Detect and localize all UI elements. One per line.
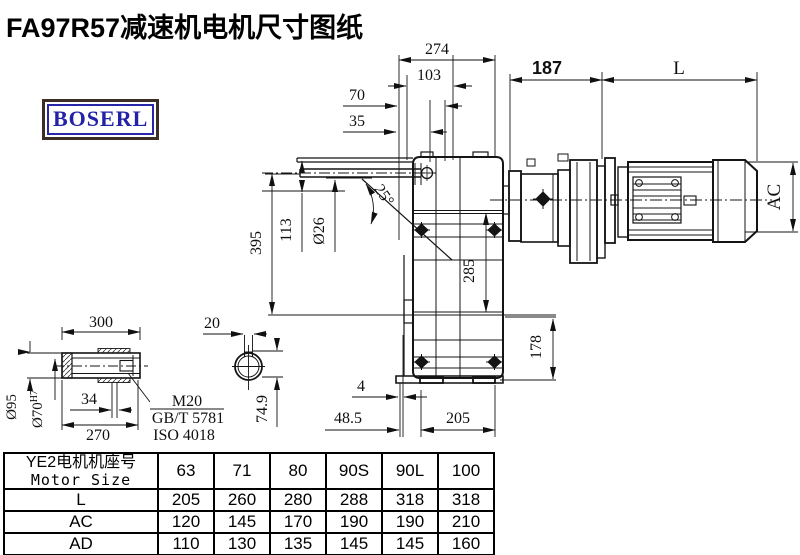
input-shaft xyxy=(262,158,436,185)
note-standard-iso: ISO 4018 xyxy=(153,427,215,444)
cell: 160 xyxy=(438,533,494,555)
cell: 190 xyxy=(382,511,438,533)
cell: 210 xyxy=(438,511,494,533)
dim-187: 187 xyxy=(532,58,562,78)
dim-34: 34 xyxy=(81,391,97,408)
note-standard-gb: GB/T 5781 xyxy=(152,410,224,427)
table-row-L: L 205 260 280 288 318 318 xyxy=(4,489,494,511)
cell: 190 xyxy=(326,511,382,533)
dim-35: 35 xyxy=(349,113,365,130)
dim-178: 178 xyxy=(528,335,545,359)
dim-angle: 25° xyxy=(370,181,397,209)
table-corner-line1: YE2电机机座号 xyxy=(5,454,157,472)
column-header: 71 xyxy=(214,453,270,489)
cell: 145 xyxy=(326,533,382,555)
shaft-section-view xyxy=(232,345,265,390)
cell: 288 xyxy=(326,489,382,511)
cell: 280 xyxy=(270,489,326,511)
dim-300: 300 xyxy=(89,314,113,331)
dim-L: L xyxy=(673,58,685,79)
dim-AC: AC xyxy=(764,184,785,210)
dim-20: 20 xyxy=(204,315,220,332)
motor-size-table: YE2电机机座号 Motor Size 63 71 80 90S 90L 100… xyxy=(3,452,495,555)
cell: 110 xyxy=(158,533,214,555)
dim-o95: Ø95 xyxy=(4,394,20,420)
cell: 205 xyxy=(158,489,214,511)
column-header: 100 xyxy=(438,453,494,489)
note-thread: M20 xyxy=(172,393,202,410)
dim-285: 285 xyxy=(461,259,478,283)
dim-395: 395 xyxy=(248,231,265,255)
table-corner-cell: YE2电机机座号 Motor Size xyxy=(4,453,158,489)
page: 274 103 70 35 187 L AC 395 113 Ø26 25° 2… xyxy=(0,0,800,555)
technical-drawing: 274 103 70 35 187 L AC 395 113 Ø26 25° 2… xyxy=(0,0,800,452)
column-header: 63 xyxy=(158,453,214,489)
column-header: 90S xyxy=(326,453,382,489)
dim-74-9: 74.9 xyxy=(254,395,271,423)
dim-103: 103 xyxy=(417,67,441,84)
bolt-symbols xyxy=(413,222,503,370)
oil-plug-symbol xyxy=(533,189,553,209)
brand-logo: BOSERL xyxy=(42,99,159,140)
brand-logo-text: BOSERL xyxy=(53,106,148,131)
table-row-AC: AC 120 145 170 190 190 210 xyxy=(4,511,494,533)
dim-o70: Ø70 xyxy=(30,402,46,428)
dim-o70-tolerance: H7 xyxy=(29,390,40,402)
dim-shaft-dia: Ø26 xyxy=(311,217,328,245)
cell: 318 xyxy=(438,489,494,511)
row-label: AD xyxy=(4,533,158,555)
cell: 135 xyxy=(270,533,326,555)
cell: 120 xyxy=(158,511,214,533)
brand-logo-frame: BOSERL xyxy=(47,104,154,135)
dim-274: 274 xyxy=(425,41,449,58)
page-title: FA97R57减速机电机尺寸图纸 xyxy=(6,6,363,45)
column-header: 90L xyxy=(382,453,438,489)
dim-o70h7: Ø70H7 xyxy=(29,390,46,428)
cell: 170 xyxy=(270,511,326,533)
table-header-row: YE2电机机座号 Motor Size 63 71 80 90S 90L 100 xyxy=(4,453,494,489)
cell: 318 xyxy=(382,489,438,511)
cell: 260 xyxy=(214,489,270,511)
dim-4: 4 xyxy=(357,378,365,395)
r57-gear-unit xyxy=(490,154,772,263)
dim-205: 205 xyxy=(446,410,470,427)
cell: 145 xyxy=(382,533,438,555)
cell: 130 xyxy=(214,533,270,555)
column-header: 80 xyxy=(270,453,326,489)
table-row-AD: AD 110 130 135 145 145 160 xyxy=(4,533,494,555)
dim-70: 70 xyxy=(349,87,365,104)
row-label: L xyxy=(4,489,158,511)
dim-48-5: 48.5 xyxy=(334,410,362,427)
table-corner-line2: Motor Size xyxy=(5,472,157,489)
row-label: AC xyxy=(4,511,158,533)
dim-113: 113 xyxy=(278,218,295,241)
dim-270: 270 xyxy=(86,427,110,444)
fan-cowl xyxy=(713,160,757,242)
cell: 145 xyxy=(214,511,270,533)
extension-lines xyxy=(262,55,798,437)
